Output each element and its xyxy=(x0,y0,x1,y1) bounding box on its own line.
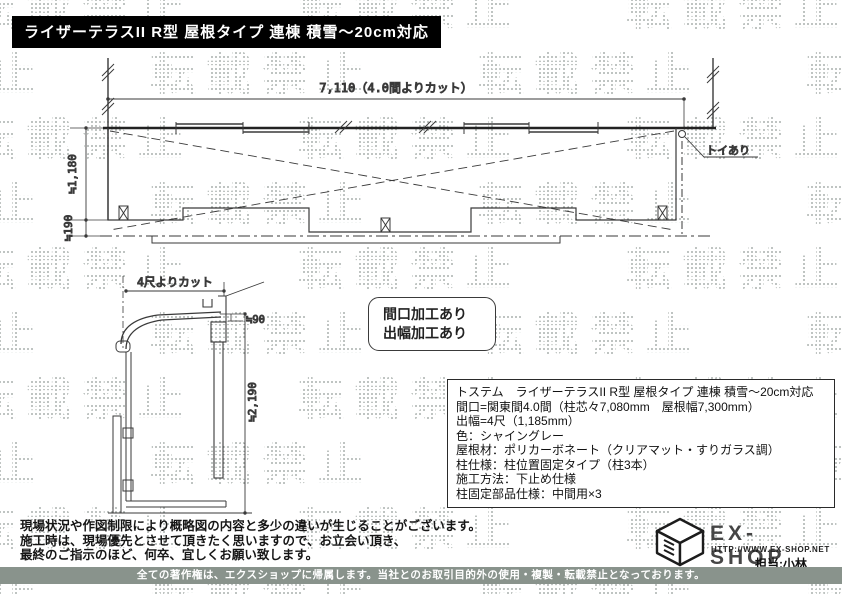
drawing-sheet: 転載禁止転載禁止転載禁止転載禁止転載禁止転載禁止転載禁止転載禁止転載禁止転載禁止… xyxy=(0,0,842,595)
spec-line: 柱仕様：柱位置固定タイプ（柱3本） xyxy=(456,458,828,473)
spec-line: 柱固定部品仕様：中間用×3 xyxy=(456,487,828,502)
spec-line: トステム ライザーテラスII R型 屋根タイプ 連棟 積雪～20cm対応 xyxy=(456,385,828,400)
title-bar: ライザーテラスII R型 屋根タイプ 連棟 積雪～20cm対応 xyxy=(12,16,441,48)
side-height-dim: ≒2,190 xyxy=(246,382,259,422)
post-middle xyxy=(381,218,390,232)
exshop-cube-icon xyxy=(654,516,706,568)
brand-url: HTTP://WWW.EX-SHOP.NET xyxy=(711,545,830,554)
spec-line: 色：シャイングレー xyxy=(456,429,828,444)
disclaimer: 現場状況や作図制限により概略図の内容と多少の違いが生じることがございます。 施工… xyxy=(20,519,481,563)
plan-edge-dim: ≒190 xyxy=(62,215,75,242)
note-line-1: 間口加工あり xyxy=(383,305,495,324)
plan-depth-dim: ≒1,180 xyxy=(66,154,79,194)
note-box: 間口加工あり 出幅加工あり xyxy=(368,297,496,351)
disclaimer-line-2: 施工時は、現場優先とさせて頂きたく思いますので、お立会い頂き、 xyxy=(20,534,481,549)
side-view: 4尺よりカット ≒90 xyxy=(108,275,265,515)
page-title: ライザーテラスII R型 屋根タイプ 連棟 積雪～20cm対応 xyxy=(24,24,429,41)
side-clearance-dim: ≒90 xyxy=(246,314,265,326)
post-right xyxy=(658,206,667,220)
copyright-bar: 全ての著作権は、エクスショップに帰属します。当社とのお取引目的外の使用・複製・転… xyxy=(0,567,842,584)
spec-box: トステム ライザーテラスII R型 屋根タイプ 連棟 積雪～20cm対応 間口=… xyxy=(447,379,835,508)
disclaimer-line-1: 現場状況や作図制限により概略図の内容と多少の違いが生じることがございます。 xyxy=(20,519,481,534)
spec-line: 出幅=4尺（1,185mm） xyxy=(456,414,828,429)
plan-view: 7,110（4.0間よりカット） xyxy=(62,58,758,243)
copyright-text: 全ての著作権は、エクスショップに帰属します。当社とのお取引目的外の使用・複製・転… xyxy=(137,569,705,581)
spec-line: 施工方法：下止め仕様 xyxy=(456,472,828,487)
side-depth-dim: 4尺よりカット xyxy=(137,275,213,289)
note-line-2: 出幅加工あり xyxy=(383,324,495,343)
drain-label: トイあり xyxy=(706,144,750,157)
disclaimer-line-3: 最終のご指示のほど、何卒、宜しくお願い致します。 xyxy=(20,548,481,563)
footer-logo: EX-SHOP HTTP://WWW.EX-SHOP.NET 担当:小林 xyxy=(650,514,830,566)
post-left xyxy=(119,206,128,220)
plan-width-dim: 7,110（4.0間よりカット） xyxy=(319,81,473,95)
spec-line: 間口=関東間4.0間（柱芯々7,080mm 屋根幅7,300mm） xyxy=(456,400,828,415)
spec-line: 屋根材：ポリカーボネート（クリアマット・すりガラス調） xyxy=(456,443,828,458)
